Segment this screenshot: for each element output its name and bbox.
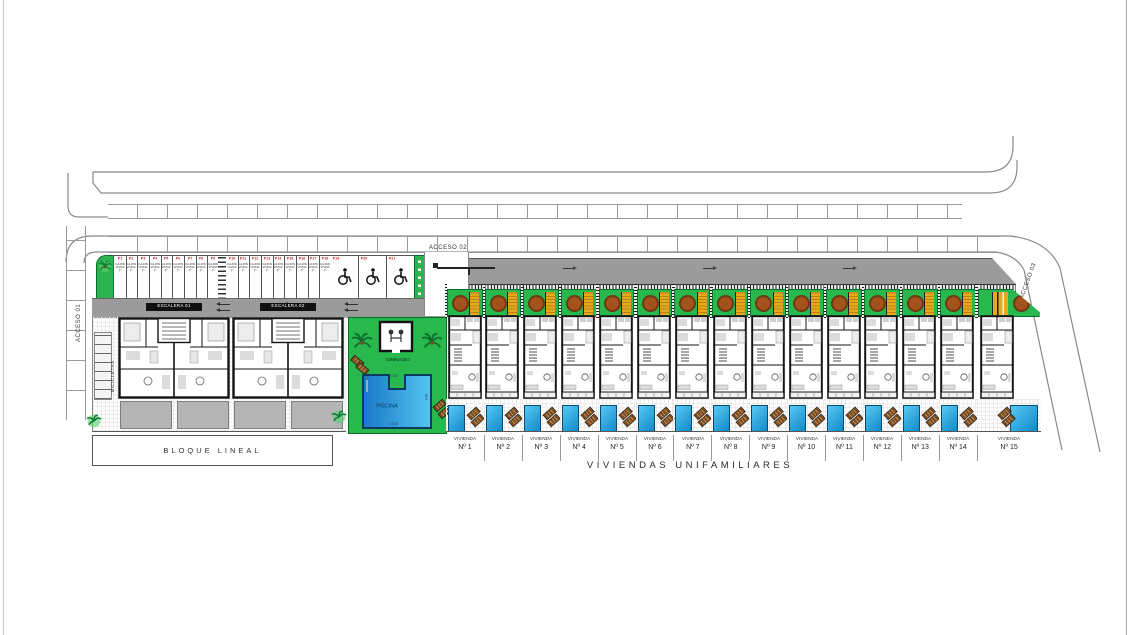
pergola-parking (507, 292, 517, 315)
street-top-outer-edge (93, 172, 990, 193)
villa-word: VIVIENDA (530, 437, 552, 442)
parking-stall-group-a: P1 CAJON VIVDA Tº P2 CAJON VIVDA Tº P3 C… (113, 255, 219, 300)
road-arrow-icon (348, 310, 358, 311)
palm-tree-icon (351, 332, 373, 352)
back-yard (787, 399, 825, 432)
stall-number: P11 (240, 257, 246, 261)
private-pool (827, 405, 844, 432)
villa-floor-plan (448, 315, 482, 399)
villa-word: VIVIENDA (871, 437, 893, 442)
villa-floor-plan (485, 315, 519, 399)
stall-number: P4 (153, 257, 157, 261)
stall-text: CAJON VIVDA Tº (297, 263, 307, 273)
stall-number: P12 (252, 257, 258, 261)
disabled-parking-stall: P20 (358, 256, 387, 299)
villa-floor-plan (561, 315, 595, 399)
private-pool (675, 405, 692, 432)
stall-number: P7 (188, 257, 192, 261)
villa-floor-plan (827, 315, 861, 399)
terrace (177, 401, 229, 429)
private-pool (600, 405, 617, 432)
front-garden (523, 289, 559, 317)
front-garden (599, 289, 635, 317)
villa-number: Nº 12 (874, 444, 891, 451)
villa-label: VIVIENDA Nº 5 (598, 435, 636, 461)
tree-icon (679, 295, 696, 312)
villa-floor-plan (902, 315, 936, 399)
escalera-label: ESCALERA 02 (271, 304, 304, 309)
back-yard (522, 399, 560, 432)
stall-number: P5 (164, 257, 168, 261)
villa-floor-plan (637, 315, 671, 399)
pergola-parking (545, 292, 555, 315)
villa-label: VIVIENDA Nº 9 (749, 435, 787, 461)
tree-icon (1013, 295, 1030, 312)
apartment-floor-plan (118, 317, 230, 399)
front-garden (788, 289, 824, 317)
villa-word: VIVIENDA (606, 437, 628, 442)
bush-icon (331, 410, 347, 424)
villa-label: VIVIENDA Nº 11 (825, 435, 863, 461)
pool-dimension: 10,06 (374, 423, 414, 429)
villa-label: VIVIENDA Nº 6 (636, 435, 674, 461)
stall-text: CAJON VIVDA Tº (238, 263, 248, 273)
front-garden (978, 289, 1040, 317)
villa-floor-plan (940, 315, 974, 399)
front-garden (447, 289, 483, 317)
front-garden (864, 289, 900, 317)
street-top-right-curve-inner (990, 160, 1017, 193)
villa-word: VIVIENDA (795, 437, 817, 442)
viviendas-unifamiliares-title: VIVIENDAS UNIFAMILIARES (540, 460, 840, 471)
villa-number: Nº 9 (762, 444, 775, 451)
pergola-parking (773, 292, 783, 315)
tree-icon (869, 295, 886, 312)
villa-floor-plan (675, 315, 709, 399)
palm-tree-icon (421, 332, 443, 352)
palm-tree-icon (98, 260, 112, 273)
villa-floor-plan (599, 315, 633, 399)
acceso-01-label: ACCESO 01 (76, 304, 82, 342)
stall-text: CAJON VIVDA Tº (227, 263, 237, 273)
escalera-label: ESCALERA 01 (157, 304, 190, 309)
pergola-parking (697, 292, 707, 315)
villa-label: VIVIENDA Nº 7 (673, 435, 711, 461)
pergola-parking (886, 292, 896, 315)
front-garden (712, 289, 748, 317)
back-yard (446, 399, 484, 432)
disabled-parking-row: P19 P20 P21 (330, 255, 414, 300)
stall-text: CAJON VIVDA Tº (126, 263, 136, 273)
villa-word: VIVIENDA (757, 437, 779, 442)
villa-floor-plan (789, 315, 823, 399)
pool-dimension: 4,06 (425, 394, 428, 401)
sidewalk-tiles-lower (108, 236, 1000, 253)
front-garden (561, 289, 597, 317)
front-garden (826, 289, 862, 317)
stall-number: P8 (199, 257, 203, 261)
villa-number: Nº 1 (458, 444, 471, 451)
front-garden (750, 289, 786, 317)
bloque-lineal-box: BLOQUE LINEAL (92, 435, 333, 466)
tree-icon (945, 295, 962, 312)
villa-word: VIVIENDA (998, 437, 1020, 442)
villa-label: VIVIENDA Nº 1 (446, 435, 484, 461)
bollard-dots (418, 259, 421, 295)
pool-garden-zone: GIMNASIO PISCINA 4,06 (348, 317, 447, 434)
villa-word: VIVIENDA (492, 437, 514, 442)
villa-label: VIVIENDA Nº 14 (939, 435, 977, 461)
villa-number: Nº 7 (686, 444, 699, 451)
back-yard (901, 399, 939, 432)
tree-icon (604, 295, 621, 312)
private-pool (941, 405, 958, 432)
pergola-parking (735, 292, 745, 315)
stall-number: P15 (287, 257, 293, 261)
back-yard (977, 399, 1041, 432)
villa-label: VIVIENDA Nº 8 (711, 435, 749, 461)
villa-number: Nº 3 (535, 444, 548, 451)
parking-group-divider-hatch (218, 255, 226, 300)
stall-number: P17 (310, 257, 316, 261)
back-yard (939, 399, 977, 432)
tree-icon (793, 295, 810, 312)
bicicletas-label: BICICLETAS (111, 360, 116, 392)
stall-number: P21 (389, 257, 395, 261)
villa-number: Nº 5 (610, 444, 623, 451)
villa-word: VIVIENDA (644, 437, 666, 442)
entrance-gate-post (433, 263, 438, 268)
escalera-label-bar: ESCALERA 01 (146, 303, 202, 311)
front-garden (637, 289, 673, 317)
back-yard (598, 399, 636, 432)
front-garden (674, 289, 710, 317)
back-yard (711, 399, 749, 432)
pool-dimension: 4,06 (379, 375, 409, 381)
gym-building (378, 320, 414, 354)
apartment-stair-block: ESCALERA 02 (232, 300, 344, 430)
stall-text: CAJON VIVDA Tº (208, 263, 218, 273)
lot-divider-hatch (975, 284, 977, 318)
villa-label: VIVIENDA Nº 3 (522, 435, 560, 461)
back-yard (749, 399, 787, 432)
private-pool (865, 405, 882, 432)
private-pool (448, 405, 465, 432)
pergola-parking (848, 292, 858, 315)
tree-icon (452, 295, 469, 312)
stall-number: P6 (176, 257, 180, 261)
stall-text: CAJON VIVDA Tº (185, 263, 195, 273)
terrace (234, 401, 286, 429)
page-edge-line-right (1126, 0, 1127, 635)
villa-word: VIVIENDA (947, 437, 969, 442)
back-yard (560, 399, 598, 432)
wheelchair-icon (336, 266, 352, 286)
stall-text: CAJON VIVDA Tº (285, 263, 295, 273)
private-pool (713, 405, 730, 432)
villa-word: VIVIENDA (833, 437, 855, 442)
villa-word: VIVIENDA (720, 437, 742, 442)
stall-text: CAJON VIVDA Tº (115, 263, 125, 273)
villa-number: Nº 10 (798, 444, 815, 451)
stall-number: P2 (129, 257, 133, 261)
tree-icon (907, 295, 924, 312)
stall-text: CAJON VIVDA Tº (262, 263, 272, 273)
villa-floor-plan (523, 315, 557, 399)
villa-floor-plan (980, 315, 1014, 399)
villa-label: VIVIENDA Nº 10 (787, 435, 825, 461)
disabled-parking-stall: P19 (330, 256, 359, 299)
piscina-label: PISCINA (357, 404, 417, 412)
front-garden (902, 289, 938, 317)
villa-number: Nº 6 (648, 444, 661, 451)
villa-label: VIVIENDA Nº 4 (560, 435, 598, 461)
back-yard (484, 399, 522, 432)
stall-text: CAJON VIVDA Tº (150, 263, 160, 273)
tree-icon (717, 295, 734, 312)
pergola-parking (962, 292, 972, 315)
stall-text: CAJON VIVDA Tº (273, 263, 283, 273)
pergola-parking (469, 292, 479, 315)
villa-word: VIVIENDA (454, 437, 476, 442)
tree-icon (755, 295, 772, 312)
stall-number: P18 (322, 257, 328, 261)
villa-number: Nº 15 (1000, 444, 1017, 451)
sidewalk-tiles-upper (108, 204, 962, 219)
pergola-parking (810, 292, 820, 315)
villa-word: VIVIENDA (568, 437, 590, 442)
villa-number: Nº 13 (912, 444, 929, 451)
villa-label: VIVIENDA Nº 12 (863, 435, 901, 461)
villa-number: Nº 2 (497, 444, 510, 451)
pergola-parking (621, 292, 631, 315)
back-yard (825, 399, 863, 432)
pergola-parking (992, 292, 1008, 315)
private-pool (751, 405, 768, 432)
private-pool (562, 405, 579, 432)
stall-number: P1 (118, 257, 122, 261)
pergola-parking (583, 292, 593, 315)
pergola-parking (924, 292, 934, 315)
villa-label: VIVIENDA Nº 2 (484, 435, 522, 461)
site-plan-canvas: ACCESO 01 ACCESO 02 ACCESO 03 P1 CAJON V… (0, 0, 1130, 635)
stall-text: CAJON VIVDA Tº (250, 263, 260, 273)
acceso-02-label: ACCESO 02 (420, 245, 476, 251)
street-left-corner (68, 173, 108, 217)
wheelchair-icon (392, 266, 408, 286)
street-top-right-curve-outer (986, 136, 1013, 172)
stall-text: CAJON VIVDA Tº (173, 263, 183, 273)
escalera-label-bar: ESCALERA 02 (260, 303, 316, 311)
villa-lot-baseline (446, 431, 1041, 432)
private-pool (789, 405, 806, 432)
villa-word: VIVIENDA (909, 437, 931, 442)
private-pool (638, 405, 655, 432)
stall-text: CAJON VIVDA Tº (161, 263, 171, 273)
tree-icon (528, 295, 545, 312)
villa-floor-plan (751, 315, 785, 399)
villa-word: VIVIENDA (682, 437, 704, 442)
tree-icon (566, 295, 583, 312)
bicycle-rack (94, 332, 112, 400)
villa-floor-plan (864, 315, 898, 399)
private-pool (524, 405, 541, 432)
road-arrow-icon (348, 304, 358, 305)
villa-floor-plan (713, 315, 747, 399)
stall-number: P10 (229, 257, 235, 261)
villa-number: Nº 14 (949, 444, 966, 451)
front-garden (940, 289, 976, 317)
terrace (120, 401, 172, 429)
page-edge-line-left (3, 0, 4, 635)
stall-number: P3 (141, 257, 145, 261)
tree-icon (490, 295, 507, 312)
disabled-parking-stall: P21 (386, 256, 415, 299)
parking-stall-group-b: P10 CAJON VIVDA Tº P11 CAJON VIVDA Tº P1… (226, 255, 331, 300)
apartment-floor-plan (232, 317, 344, 399)
stall-text: CAJON VIVDA Tº (138, 263, 148, 273)
private-pool (486, 405, 503, 432)
private-pool (903, 405, 920, 432)
stall-number: P19 (333, 257, 339, 261)
back-yard (863, 399, 901, 432)
stall-number: P20 (361, 257, 367, 261)
villa-number: Nº 4 (572, 444, 585, 451)
apartment-stair-block: ESCALERA 01 (118, 300, 230, 430)
stall-text: CAJON VIVDA Tº (196, 263, 206, 273)
stall-number: P13 (264, 257, 270, 261)
stall-number: P16 (298, 257, 304, 261)
stall-text: CAJON VIVDA Tº (320, 263, 330, 273)
tree-icon (831, 295, 848, 312)
wheelchair-icon (364, 266, 380, 286)
bloque-lineal-label: BLOQUE LINEAL (93, 436, 332, 465)
stall-number: P9 (211, 257, 215, 261)
stall-text: CAJON VIVDA Tº (308, 263, 318, 273)
pergola-parking (659, 292, 669, 315)
back-yard (673, 399, 711, 432)
front-garden (485, 289, 521, 317)
back-yard (636, 399, 674, 432)
stall-number: P14 (275, 257, 281, 261)
villa-label: VIVIENDA Nº 13 (901, 435, 939, 461)
bush-icon (86, 414, 102, 428)
villa-number: Nº 8 (724, 444, 737, 451)
tree-icon (642, 295, 659, 312)
villa-number: Nº 11 (836, 444, 853, 451)
villa-label: VIVIENDA Nº 15 (977, 435, 1041, 461)
